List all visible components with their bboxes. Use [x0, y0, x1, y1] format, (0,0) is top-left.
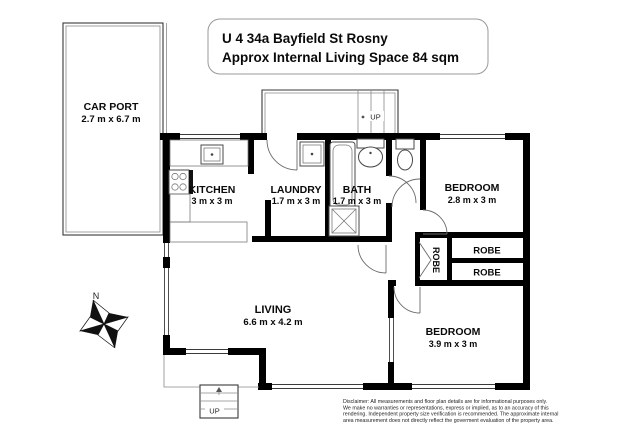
- robe2-label: ROBE: [473, 268, 500, 279]
- top-porch: UP: [262, 90, 398, 133]
- bedroom2-dims: 3.9 m x 3 m: [429, 339, 478, 349]
- bath-label: BATH: [343, 184, 371, 196]
- carport-dims: 2.7 m x 6.7 m: [81, 114, 140, 125]
- bedroom2-label: BEDROOM: [426, 326, 481, 338]
- carport-label: CAR PORT: [84, 101, 139, 113]
- up-label-bottom: UP: [209, 407, 219, 416]
- kitchen-label: KITCHEN: [189, 184, 236, 196]
- laundry-label: LAUNDRY: [271, 184, 322, 196]
- stairs-up-arrow-bottom: [216, 387, 222, 392]
- floor-plan-page: U 4 34a Bayfield St Rosny Approx Interna…: [0, 0, 640, 448]
- shower-icon: [329, 206, 359, 236]
- kitchen-bench-left: [170, 194, 190, 222]
- bath-fixtures: [329, 139, 414, 236]
- robe-bifold-door: [419, 242, 431, 278]
- floor-plan-svg: U 4 34a Bayfield St Rosny Approx Interna…: [0, 0, 640, 448]
- title-box: U 4 34a Bayfield St Rosny Approx Interna…: [208, 19, 488, 74]
- laundry-fixtures: [300, 142, 324, 166]
- disclaimer-text: Disclaimer: All measurements and floor p…: [343, 399, 558, 424]
- disclaimer-line3: rendering. Independent property size ver…: [343, 412, 558, 418]
- disclaimer-line2: We make no warranties or representations…: [343, 405, 549, 411]
- bottom-stairs: UP: [200, 385, 238, 418]
- title-line2: Approx Internal Living Space 84 sqm: [222, 50, 459, 65]
- hall-door-arc: [358, 245, 386, 273]
- bedroom1-door-arc: [423, 210, 447, 234]
- north-label: N: [93, 291, 100, 301]
- title-line1: U 4 34a Bayfield St Rosny: [222, 31, 388, 46]
- kitchen-bench-bottom: [170, 222, 247, 242]
- living-dims: 6.6 m x 4.2 m: [243, 317, 302, 328]
- kitchen-dims: 3 m x 3 m: [191, 196, 232, 206]
- laundry-dims: 1.7 m x 3 m: [272, 196, 321, 206]
- bedroom1-label: BEDROOM: [445, 182, 500, 194]
- disclaimer-line4: area measurement does not directly refle…: [343, 418, 554, 424]
- bedroom1-dims: 2.8 m x 3 m: [448, 195, 497, 205]
- up-label-top: UP: [370, 113, 380, 122]
- disclaimer-line1: Disclaimer: All measurements and floor p…: [343, 399, 547, 405]
- robe1-label: ROBE: [473, 246, 500, 257]
- bath-dims: 1.7 m x 3 m: [333, 196, 382, 206]
- bottom-porch: UP: [164, 355, 259, 418]
- stairs-up-arrow-top: [362, 116, 365, 119]
- living-label: LIVING: [255, 304, 292, 316]
- compass-rose-icon: N: [80, 291, 128, 348]
- bedroom2-door-arc: [394, 287, 420, 313]
- robe3-label: ROBE: [431, 247, 441, 273]
- toilet-icon: [396, 139, 414, 170]
- basin-icon: [357, 139, 384, 167]
- laundry-door-arc: [267, 140, 297, 170]
- carport-outline: [63, 23, 167, 235]
